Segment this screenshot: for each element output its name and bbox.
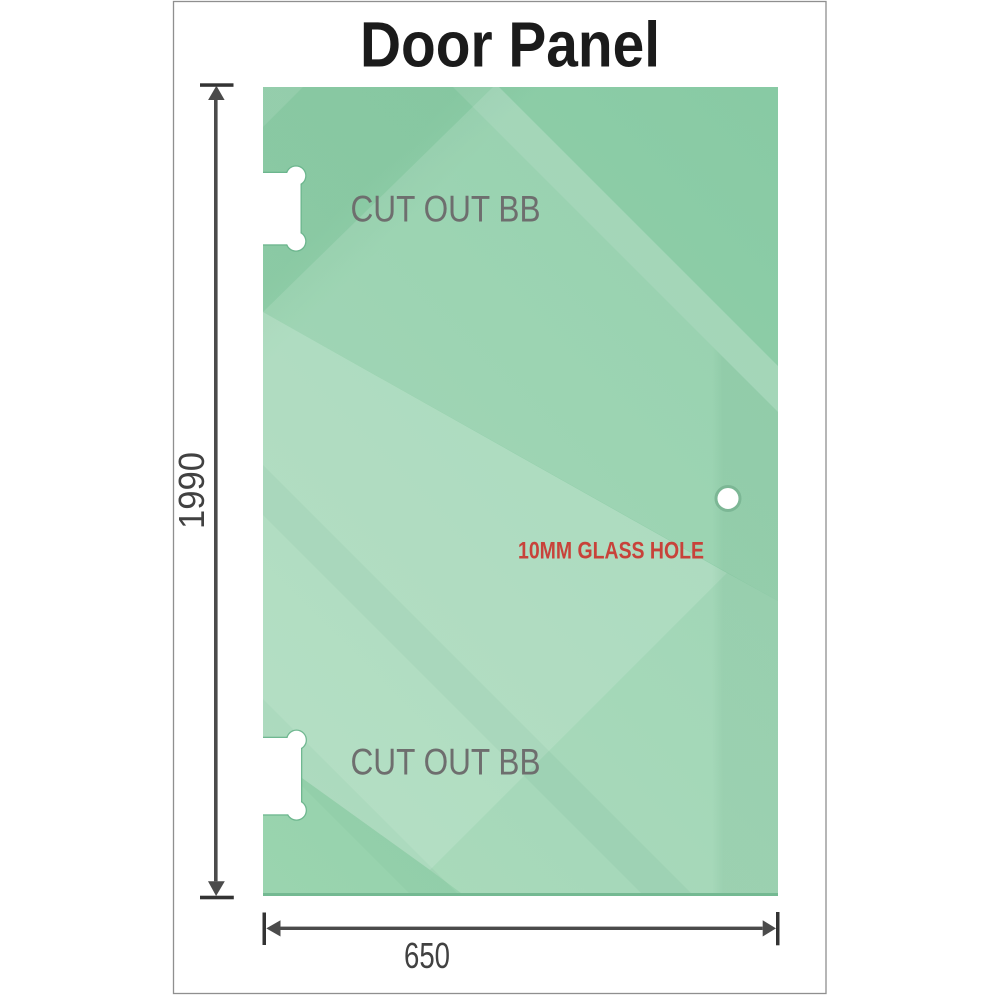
svg-text:10MM GLASS HOLE: 10MM GLASS HOLE — [518, 538, 704, 565]
svg-text:CUT OUT BB: CUT OUT BB — [351, 189, 541, 230]
svg-text:1990: 1990 — [171, 452, 212, 529]
svg-text:650: 650 — [404, 935, 450, 976]
svg-text:Door Panel: Door Panel — [360, 9, 660, 81]
svg-text:CUT OUT BB: CUT OUT BB — [351, 742, 541, 783]
